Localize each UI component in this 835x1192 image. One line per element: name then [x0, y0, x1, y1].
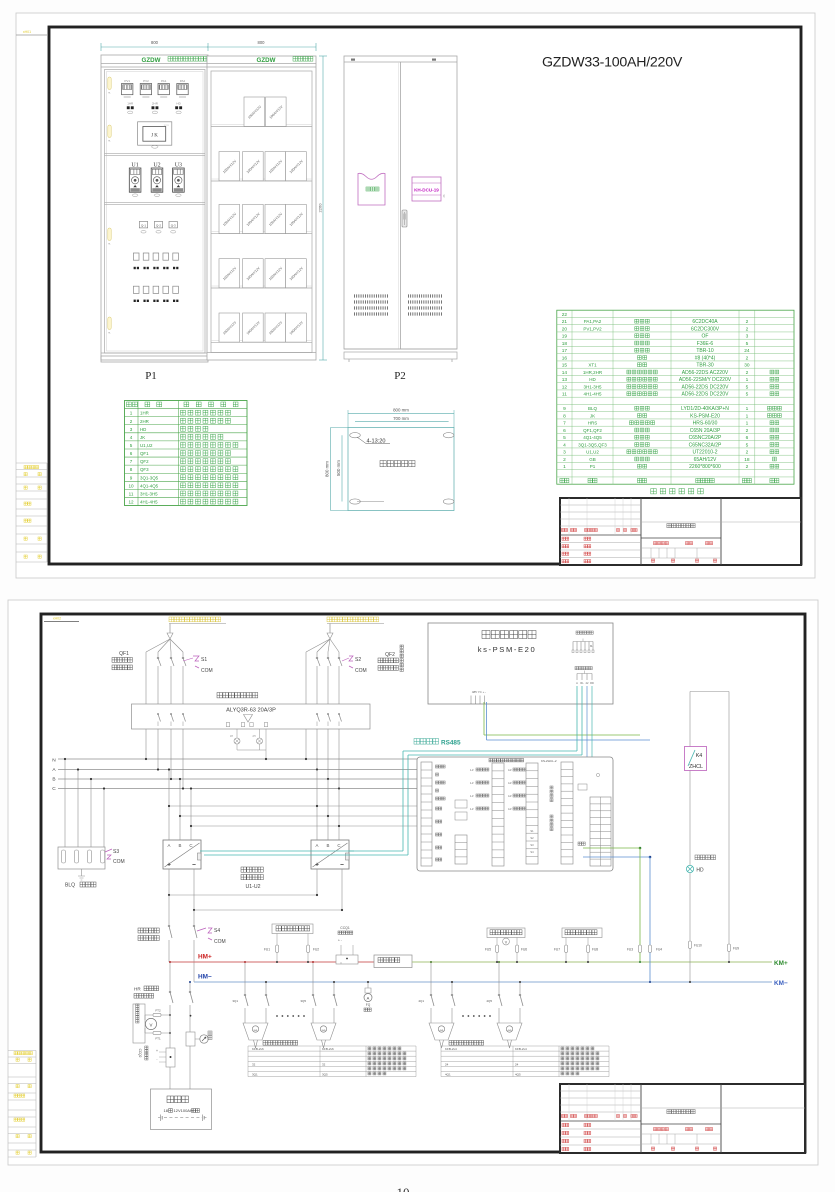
- svg-text:RS485: RS485: [441, 740, 461, 747]
- svg-text:HR: HR: [134, 986, 141, 991]
- svg-text:B: B: [179, 843, 182, 848]
- svg-text:4J/: 4J/: [508, 768, 512, 772]
- svg-text:FU9: FU9: [733, 947, 739, 951]
- svg-text:PV1,PV2: PV1,PV2: [583, 326, 602, 331]
- svg-text:S2: S2: [530, 836, 534, 840]
- svg-text:PA1: PA1: [161, 79, 167, 83]
- svg-text:2260: 2260: [318, 203, 323, 213]
- svg-text:C65NC20A/2P: C65NC20A/2P: [689, 435, 722, 441]
- svg-text:Q-2: Q-2: [156, 223, 161, 227]
- svg-text:15: 15: [562, 363, 568, 369]
- svg-text:OF: OF: [702, 334, 709, 340]
- svg-text:FQ: FQ: [366, 1003, 371, 1007]
- svg-text:3Q1-3Q5: 3Q1-3Q5: [140, 475, 159, 480]
- svg-text:QF3: QF3: [140, 467, 149, 472]
- svg-text:JK: JK: [590, 413, 595, 418]
- svg-text:FU6: FU6: [521, 948, 527, 952]
- svg-text:A: A: [168, 843, 171, 848]
- svg-text:3Q5: 3Q5: [300, 999, 306, 1003]
- svg-text:M-: M-: [590, 644, 593, 648]
- svg-text:2: 2: [746, 319, 749, 325]
- svg-text:COM: COM: [355, 668, 367, 674]
- svg-text:A: A: [367, 996, 370, 1001]
- svg-text:+: +: [156, 1049, 158, 1053]
- svg-text:FT1: FT1: [155, 1037, 161, 1041]
- svg-text:HD: HD: [589, 377, 596, 382]
- svg-text:2: 2: [746, 464, 749, 470]
- svg-text:1J/: 1J/: [470, 768, 474, 772]
- svg-text:30: 30: [744, 363, 750, 369]
- svg-text:−: −: [192, 862, 196, 869]
- svg-text:5: 5: [746, 341, 749, 347]
- svg-text:C: C: [337, 843, 340, 848]
- svg-text:BLQ: BLQ: [65, 883, 75, 889]
- svg-text:3H1-3H5: 3H1-3H5: [583, 384, 602, 389]
- svg-text:7: 7: [563, 421, 566, 427]
- svg-text:2: 2: [746, 326, 749, 332]
- svg-text:14: 14: [562, 370, 568, 376]
- svg-text:HRS: HRS: [588, 421, 598, 426]
- svg-text:S1: S1: [201, 657, 207, 663]
- svg-text:16: 16: [562, 355, 568, 361]
- svg-text:3: 3: [746, 334, 749, 340]
- svg-text:V: V: [150, 1022, 153, 1027]
- svg-text:QF1,QF2: QF1,QF2: [583, 428, 602, 433]
- svg-text:HD: HD: [140, 427, 146, 432]
- svg-text:18: 18: [562, 341, 568, 347]
- svg-text:Q-1: Q-1: [141, 223, 146, 227]
- svg-text:6: 6: [130, 451, 133, 456]
- svg-text:1: 1: [130, 411, 133, 416]
- svg-text:S4: S4: [214, 928, 220, 934]
- svg-text:KFB-2x6: KFB-2x6: [252, 1047, 264, 1051]
- svg-text:#8 (40*4): #8 (40*4): [695, 355, 716, 361]
- svg-text:JK: JK: [140, 435, 145, 440]
- svg-text:2: 2: [563, 457, 566, 463]
- svg-text:11: 11: [562, 392, 567, 398]
- svg-text:6: 6: [563, 428, 566, 434]
- svg-text:GZDW: GZDW: [257, 57, 276, 64]
- svg-text:20: 20: [562, 326, 568, 332]
- svg-text:COM: COM: [113, 859, 125, 865]
- svg-text:2: 2: [746, 428, 749, 434]
- svg-text:TBR-10: TBR-10: [696, 348, 713, 354]
- svg-text:AD56-22DS DC220V: AD56-22DS DC220V: [682, 384, 730, 390]
- svg-text:1HR: 1HR: [127, 101, 134, 105]
- svg-text:QF1: QF1: [119, 651, 129, 657]
- svg-text:KM−: KM−: [774, 980, 788, 987]
- svg-text:10: 10: [128, 483, 134, 488]
- svg-text:700 mm: 700 mm: [393, 416, 409, 421]
- svg-text:U1-U2: U1-U2: [246, 884, 261, 890]
- svg-text:B: B: [52, 777, 55, 783]
- svg-text:FT2: FT2: [155, 1009, 161, 1013]
- svg-text:65AH/12V: 65AH/12V: [694, 457, 717, 463]
- svg-text:4J/: 4J/: [508, 781, 512, 785]
- svg-text:2: 2: [746, 450, 749, 456]
- svg-text:9: 9: [563, 406, 566, 412]
- svg-text:500 mm: 500 mm: [336, 460, 341, 476]
- svg-text:1HR: 1HR: [140, 411, 149, 416]
- svg-text:ALYQ3R-63 20A/3P: ALYQ3R-63 20A/3P: [226, 708, 276, 714]
- svg-text:3Q1: 3Q1: [252, 1073, 258, 1077]
- svg-text:FU3: FU3: [627, 948, 633, 952]
- svg-text:RL: RL: [580, 681, 584, 685]
- svg-text:C: C: [189, 843, 192, 848]
- svg-text:TBR-30: TBR-30: [696, 363, 713, 369]
- svg-text:24: 24: [445, 1063, 449, 1067]
- svg-text:xH02: xH02: [53, 617, 61, 621]
- svg-text:xH01: xH01: [23, 30, 31, 34]
- svg-text:12: 12: [562, 384, 568, 390]
- svg-text:FU1: FU1: [264, 948, 270, 952]
- svg-text:4Q5: 4Q5: [486, 999, 492, 1003]
- svg-text:3Q1: 3Q1: [232, 999, 238, 1003]
- svg-text:S2: S2: [355, 657, 361, 663]
- svg-text:A: A: [576, 681, 578, 685]
- svg-text:7: 7: [130, 459, 133, 464]
- svg-text:FU5: FU5: [485, 948, 491, 952]
- svg-text:PV2: PV2: [143, 79, 149, 83]
- svg-text:KM+: KM+: [774, 960, 788, 967]
- svg-text:QF1: QF1: [140, 451, 149, 456]
- svg-text:N: N: [52, 758, 56, 764]
- svg-text:QF2: QF2: [140, 459, 149, 464]
- svg-text:4: 4: [130, 435, 133, 440]
- svg-text:A: A: [316, 843, 319, 848]
- svg-text:1HR,2HR: 1HR,2HR: [583, 370, 603, 375]
- svg-text:21: 21: [562, 319, 568, 325]
- svg-text:C65N 20A/3P: C65N 20A/3P: [690, 428, 721, 434]
- svg-text:17: 17: [562, 348, 568, 354]
- svg-text:KFB-2x6: KFB-2x6: [322, 1047, 334, 1051]
- svg-text:1: 1: [563, 464, 566, 470]
- svg-text:32: 32: [252, 1063, 256, 1067]
- svg-text:1J/: 1J/: [470, 807, 474, 811]
- svg-text:FU4: FU4: [656, 948, 662, 952]
- svg-text:1: 1: [746, 406, 749, 412]
- svg-text:CCQ1: CCQ1: [340, 926, 350, 930]
- svg-text:KS-ZHCL-2: KS-ZHCL-2: [541, 759, 557, 763]
- svg-text:COM: COM: [214, 939, 226, 945]
- svg-text:+: +: [315, 862, 319, 869]
- svg-text:13: 13: [562, 377, 568, 383]
- svg-text:2HR: 2HR: [152, 101, 159, 105]
- svg-text:3Q1-3Q5,QF3: 3Q1-3Q5,QF3: [578, 442, 607, 447]
- svg-text:CCQ2: CCQ2: [138, 1049, 142, 1058]
- svg-text:UT22010-2: UT22010-2: [692, 450, 717, 456]
- svg-text:4H1-4H5: 4H1-4H5: [140, 500, 158, 505]
- svg-text:4J/: 4J/: [508, 807, 512, 811]
- svg-text:1: 1: [746, 421, 749, 427]
- svg-text:S1: S1: [530, 829, 534, 833]
- svg-text:LYD1/2D-40KA/3P+N: LYD1/2D-40KA/3P+N: [681, 406, 729, 412]
- svg-text:8: 8: [563, 413, 566, 419]
- svg-text:22: 22: [562, 312, 568, 318]
- svg-text:4Q1-4Q5: 4Q1-4Q5: [583, 435, 602, 440]
- svg-text:4Q5: 4Q5: [515, 1073, 521, 1077]
- svg-text:HRS-60/30: HRS-60/30: [693, 421, 718, 427]
- svg-text:PA2: PA2: [180, 79, 186, 83]
- svg-text:ZHCL: ZHCL: [689, 764, 703, 770]
- svg-text:11: 11: [129, 491, 134, 496]
- svg-text:P2: P2: [394, 370, 406, 382]
- svg-text:−: −: [340, 862, 344, 869]
- svg-text:3: 3: [130, 427, 133, 432]
- svg-text:S3: S3: [113, 849, 119, 855]
- svg-text:4Q1: 4Q1: [445, 1073, 451, 1077]
- svg-text:2: 2: [130, 419, 133, 424]
- svg-text:12V100AH: 12V100AH: [174, 1108, 193, 1113]
- svg-text:HD: HD: [696, 868, 704, 874]
- svg-text:1H: 1H: [230, 735, 233, 738]
- svg-text:GZDW33-100AH/220V: GZDW33-100AH/220V: [542, 55, 683, 71]
- svg-text:9: 9: [130, 475, 133, 480]
- svg-text:3Q5: 3Q5: [322, 1073, 328, 1077]
- svg-text:PV1: PV1: [124, 79, 130, 83]
- svg-text:2H: 2H: [252, 735, 255, 738]
- svg-text:4Q1-4Q5: 4Q1-4Q5: [140, 483, 159, 488]
- svg-text:XT1: XT1: [588, 363, 597, 368]
- svg-text:QF2: QF2: [385, 652, 395, 658]
- svg-text:P1: P1: [590, 464, 596, 469]
- svg-text:GZDW: GZDW: [142, 57, 161, 64]
- svg-text:HM+: HM+: [198, 954, 212, 961]
- svg-text:1J/: 1J/: [470, 781, 474, 785]
- svg-text:U1,U2: U1,U2: [140, 443, 153, 448]
- svg-text:8: 8: [130, 467, 133, 472]
- svg-text:4: 4: [563, 442, 566, 448]
- svg-text:6C2DC300V: 6C2DC300V: [691, 326, 720, 332]
- svg-text:5: 5: [746, 442, 749, 448]
- svg-text:2HR: 2HR: [140, 419, 149, 424]
- svg-text:FU10: FU10: [694, 944, 702, 948]
- svg-text:1: 1: [746, 377, 749, 383]
- svg-text:12: 12: [128, 500, 134, 505]
- svg-text:18: 18: [164, 1108, 169, 1113]
- svg-text:4H1-4H5: 4H1-4H5: [583, 392, 602, 397]
- svg-text:24: 24: [515, 1063, 519, 1067]
- svg-text:BLQ: BLQ: [588, 406, 598, 411]
- svg-text:18: 18: [744, 457, 750, 463]
- svg-text:2: 2: [746, 370, 749, 376]
- svg-text:FU7: FU7: [554, 948, 560, 952]
- svg-text:5: 5: [563, 435, 566, 441]
- svg-text:2: 2: [746, 355, 749, 361]
- svg-text:19: 19: [562, 334, 568, 340]
- svg-text:32: 32: [322, 1063, 326, 1067]
- svg-text:COM: COM: [201, 668, 213, 674]
- svg-text:FU2: FU2: [313, 948, 319, 952]
- svg-text:800: 800: [258, 40, 266, 45]
- svg-text:S4: S4: [530, 850, 534, 854]
- svg-text:6C2DC40A: 6C2DC40A: [692, 319, 718, 325]
- svg-text:B: B: [327, 843, 330, 848]
- svg-text:PA1,PA2: PA1,PA2: [584, 319, 602, 324]
- svg-text:6: 6: [746, 435, 749, 441]
- svg-text:800: 800: [151, 40, 159, 45]
- svg-text:KS-PSM-E20: KS-PSM-E20: [690, 413, 720, 419]
- svg-text:RD: RD: [590, 681, 594, 685]
- svg-text:10: 10: [397, 1185, 410, 1192]
- svg-text:AD56-22SM/Y DC220V: AD56-22SM/Y DC220V: [679, 377, 732, 383]
- svg-text:4J/: 4J/: [508, 794, 512, 798]
- svg-text:ZS: ZS: [443, 194, 446, 197]
- svg-text:24: 24: [744, 348, 750, 354]
- svg-text:Q-3: Q-3: [171, 223, 176, 227]
- svg-text:3H1-3H5: 3H1-3H5: [140, 491, 158, 496]
- svg-text:HM−: HM−: [198, 974, 212, 981]
- svg-text:C: C: [52, 786, 56, 792]
- svg-text:4Q1: 4Q1: [418, 999, 424, 1003]
- svg-text:GB: GB: [589, 457, 596, 462]
- svg-text:800 mm: 800 mm: [325, 461, 330, 477]
- svg-text:K4: K4: [696, 753, 703, 759]
- svg-text:C65NC32A/2P: C65NC32A/2P: [689, 442, 722, 448]
- svg-text:5: 5: [746, 392, 749, 398]
- svg-text:U1,U2: U1,U2: [586, 450, 599, 455]
- svg-text:P1: P1: [145, 370, 157, 382]
- svg-text:5: 5: [746, 384, 749, 390]
- svg-text:485 YC + -: 485 YC + -: [472, 690, 486, 694]
- svg-text:AD56-22DS DC220V: AD56-22DS DC220V: [682, 392, 730, 398]
- svg-text:3: 3: [563, 450, 566, 456]
- svg-text:-: -: [156, 1057, 157, 1061]
- svg-text:2260*800*600: 2260*800*600: [689, 464, 721, 470]
- svg-text:KH-DCU-19: KH-DCU-19: [414, 187, 439, 192]
- svg-text:FU8: FU8: [592, 948, 598, 952]
- svg-text:1J/: 1J/: [470, 794, 474, 798]
- svg-text:KFB-2x4: KFB-2x4: [445, 1047, 457, 1051]
- svg-text:800 mm: 800 mm: [393, 408, 409, 413]
- svg-text:ks-PSM-E20: ks-PSM-E20: [478, 645, 537, 654]
- svg-text:KFB-2x4: KFB-2x4: [515, 1047, 527, 1051]
- svg-text:J K: J K: [151, 134, 158, 139]
- svg-text:1: 1: [746, 413, 749, 419]
- svg-text:4-13:20: 4-13:20: [367, 438, 386, 444]
- svg-text:5: 5: [130, 443, 133, 448]
- svg-text:+ -: + -: [338, 939, 342, 943]
- svg-text:AD56-22DS AC220V: AD56-22DS AC220V: [682, 370, 729, 376]
- svg-text:S3: S3: [530, 843, 534, 847]
- svg-text:+: +: [167, 862, 171, 869]
- svg-text:F36E-6: F36E-6: [697, 341, 714, 347]
